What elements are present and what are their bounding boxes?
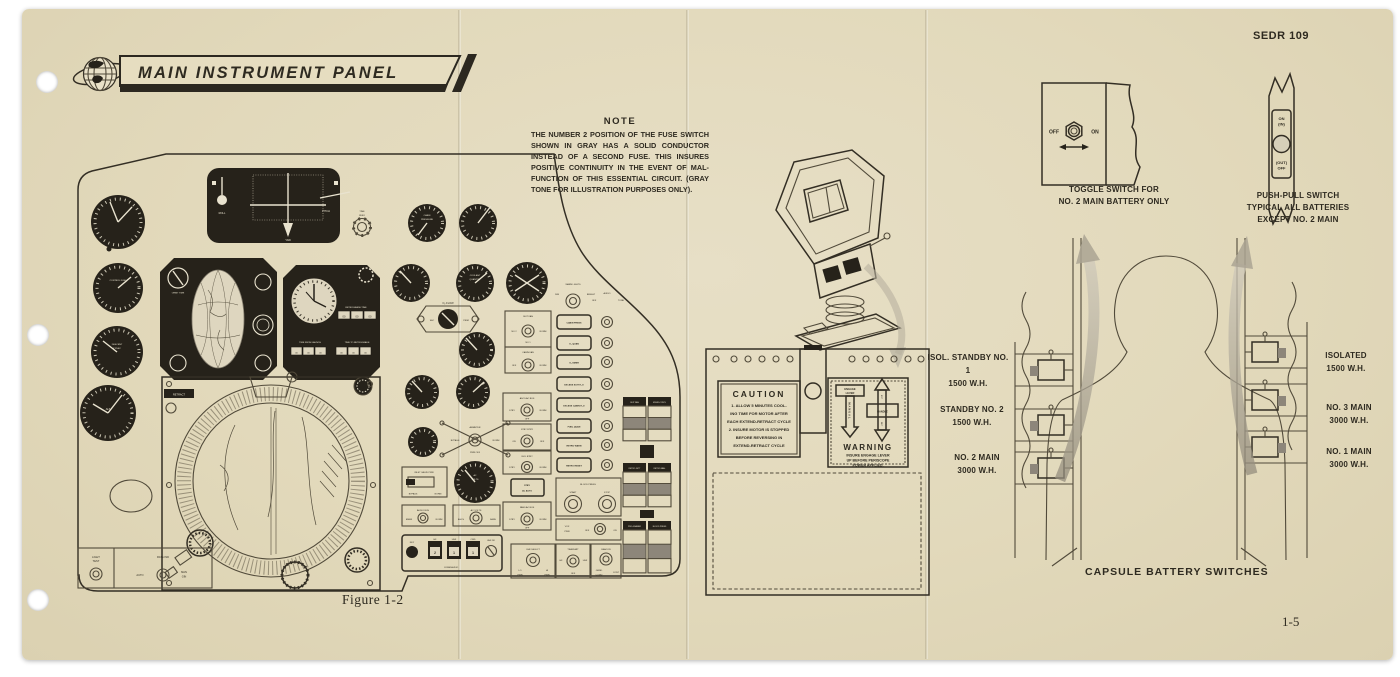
svg-text:ASCS AC BUS: ASCS AC BUS [520,397,535,400]
battery-label: ISOL. STANDBY NO. 1 1500 W.H. [926,352,1010,390]
svg-text:STBY: STBY [509,519,515,521]
svg-text:2: 2 [434,551,436,555]
screw-icons [713,356,924,362]
svg-text:FANS AC BUS: FANS AC BUS [520,506,535,509]
power-comm-cluster: AMMETER BYPASS NORM PWR OFF INLET VALVE … [402,421,510,571]
svg-text:HF: HF [560,560,564,562]
svg-text:PWR: PWR [544,575,550,577]
svg-text:BRIGHT: BRIGHT [587,294,596,296]
svg-text:OFF: OFF [592,300,597,302]
warning-light: EXCESS CABIN H₂O [563,405,585,408]
svg-text:BEFORE REVERSING IN: BEFORE REVERSING IN [736,435,783,440]
svg-text:GIN: GIN [182,575,187,579]
bus-switch-boxes: SUIT FAN NO 2 NORM NO 1 CABIN FAN OFF NO… [503,311,551,530]
svg-text:TONE: TONE [618,300,625,302]
svg-text:START: START [570,491,578,494]
warning-title: WARNING [843,443,892,452]
svg-text:1: 1 [472,551,474,555]
svg-text:CONT: CONT [613,572,620,574]
retract-label: RETRACT [173,393,186,397]
svg-text:TIME: TIME [359,211,365,213]
on-label: ON [1091,130,1099,136]
page-title: MAIN INSTRUMENT PANEL [138,64,398,82]
svg-text:ENGAGE: ENGAGE [844,387,856,391]
svg-text:RET: RET [880,422,882,427]
punch-hole [36,71,58,93]
svg-text:LEVER: LEVER [846,391,855,395]
warning-light: CABIN PRESS [567,322,582,325]
svg-text:OFF: OFF [525,528,530,530]
svg-text:UHF SELECT: UHF SELECT [526,549,540,551]
svg-text:BYPASS: BYPASS [409,493,418,496]
svg-text:NORM: NORM [540,331,547,333]
svg-text:SUIT FAN: SUIT FAN [523,315,533,318]
doc-reference: SEDR 109 [1253,30,1309,42]
off-label: OFF [1049,130,1059,136]
svg-text:NORM: NORM [540,467,547,469]
svg-text:OFF: OFF [585,530,590,532]
svg-text:ING TIME FOR MOTOR AFTER: ING TIME FOR MOTOR AFTER [730,411,788,416]
svg-text:BLOOD PRESS: BLOOD PRESS [580,484,596,486]
svg-text:AC: AC [473,474,476,477]
caution-placard: CAUTION 1. ALLOW 5 MINUTES COOL- ING TIM… [718,381,800,457]
page-number: 1-5 [1282,614,1299,630]
svg-text:WARN LIGHTS: WARN LIGHTS [565,283,581,286]
rate-of-descent-gauges: CONTROL FUEL DESCENT FT/SEC [91,195,145,378]
svg-text:OFF: OFF [1278,166,1287,171]
svg-text:COOLANT: COOLANT [470,274,481,277]
svg-text:AUDIO BUS: AUDIO BUS [417,509,430,512]
svg-text:EXTEND-RETRACT CYCLE: EXTEND-RETRACT CYCLE [733,443,785,448]
svg-text:1: 1 [453,551,455,555]
svg-text:LO: LO [519,570,522,572]
svg-text:ON: ON [512,441,516,443]
svg-text:SUIT FAN: SUIT FAN [630,401,639,404]
svg-text:NORM: NORM [540,365,547,367]
svg-text:PRESSURE: PRESSURE [421,219,434,221]
svg-text:ON: ON [613,530,617,532]
battery-label: ISOLATED 1500 W.H. [1310,350,1382,376]
svg-text:AMMETER: AMMETER [470,426,481,429]
battery-label: NO. 2 MAIN 3000 W.H. [944,452,1010,478]
svg-text:ENVIR-CONTL: ENVIR-CONTL [653,402,666,404]
punch-hole [27,324,49,346]
svg-text:INSURE ENGAGE LEVER: INSURE ENGAGE LEVER [846,454,890,458]
svg-text:SEC: SEC [430,320,435,322]
svg-text:VOX: VOX [565,526,570,528]
svg-text:AUTO: AUTO [136,573,143,577]
svg-text:BYPASS: BYPASS [451,439,460,442]
svg-text:STBY: STBY [509,467,515,469]
note-heading: NOTE [531,116,709,127]
warning-light: O₂ QUAN [569,343,579,346]
svg-text:TEST: TEST [93,559,100,563]
svg-text:GRND: GRND [596,570,603,572]
fuse-channel [800,349,826,433]
svg-text:KEY: KEY [410,542,415,544]
svg-text:COMD: COMD [596,575,603,577]
periscope-screen: RETRACT [162,377,380,590]
time-zero-knob: TIME ZERO [354,211,371,236]
punch-hole [27,589,49,611]
svg-text:HI: HI [546,570,549,572]
attitude-indicator: ROLL PITCH YAW [207,168,350,243]
svg-text:ISOL BTRY: ISOL BTRY [521,456,533,458]
warning-light: EXCESS SUIT H₂O [564,385,584,387]
svg-text:STBY BTRY: STBY BTRY [521,429,534,431]
svg-text:UHF: UHF [583,560,588,562]
instrument-panel-figure: CONTROL FUEL DESCENT FT/SEC ROLL PITCH Y… [70,145,685,610]
svg-text:RETRO MAN.: RETRO MAN. [654,467,666,470]
pitch-label: PITCH [322,209,330,213]
toggle-switch-caption: TOGGLE SWITCH FOR NO. 2 MAIN BATTERY ONL… [1024,184,1204,208]
orbit-time-label: ORBIT TIME [172,293,185,295]
capsule-battery-figure [990,222,1380,567]
svg-text:RATE IND: RATE IND [157,555,169,559]
altimeter-gauge: ALT [80,385,136,441]
svg-text:EXT: EXT [880,395,882,400]
environment-gauges: CABIN PRESSURE COOLANT QUANTITY O₂ FLOW … [392,204,548,409]
svg-text:AC AUTO: AC AUTO [522,490,532,493]
battery-label: NO. 1 MAIN 3000 W.H. [1310,446,1388,472]
periscope-drawing [748,146,923,361]
svg-text:CMD: CMD [471,539,476,541]
svg-text:BEACON: BEACON [601,548,611,551]
svg-text:OFF: OFF [540,441,545,443]
svg-text:STOP: STOP [604,492,610,494]
svg-text:PRO-GRAMER: PRO-GRAMER [628,525,642,528]
svg-text:UHF: UHF [452,539,457,541]
svg-text:EMER: EMER [406,519,413,521]
svg-text:PWR OFF: PWR OFF [470,452,481,454]
svg-text:2. INSURE MOTOR IS STOPPED: 2. INSURE MOTOR IS STOPPED [729,427,790,432]
svg-text:NORM: NORM [493,440,500,442]
warning-lights-section: WARN LIGHTS DIM BRIGHT AUDIO OFF TONE CA… [555,283,625,472]
svg-text:LIGHT: LIGHT [92,555,100,559]
svg-text:(OUT): (OUT) [1276,160,1288,165]
manual-page: MAIN INSTRUMENT PANEL NOTE THE NUMBER 2 … [0,0,1400,677]
capsule-battery-caption: CAPSULE BATTERY SWITCHES [1085,566,1269,578]
svg-text:COMM AUDIO: COMM AUDIO [444,566,459,569]
torn-edge [1106,83,1140,185]
svg-text:EACH EXTEND-RETRACT CYCLE: EACH EXTEND-RETRACT CYCLE [727,419,791,424]
o2-flow-label: O₂ FLOW [442,301,454,305]
svg-text:FANS: FANS [490,518,496,521]
svg-text:HF: HF [434,539,438,541]
fuse-switch-panel: CAUTION 1. ALLOW 5 MINUTES COOL- ING TIM… [700,345,935,600]
title-banner: MAIN INSTRUMENT PANEL [58,48,488,100]
blank-window [110,480,152,512]
svg-text:CABIN: CABIN [424,214,431,217]
svg-text:MANUAL: MANUAL [848,402,852,419]
svg-text:UHF DF: UHF DF [487,540,496,542]
push-pull-knob-icon [1273,136,1290,153]
caution-title: CAUTION [733,389,786,399]
svg-text:RETRO JETT: RETRO JETT [629,468,642,470]
battery-rail-left [1015,238,1081,566]
svg-text:POWER APPLIED.: POWER APPLIED. [852,463,883,467]
svg-text:NORM: NORM [540,410,547,412]
svg-text:STBY: STBY [524,485,530,487]
svg-text:OFF: OFF [571,573,576,575]
retrograde-time-label: RETROGRADE TIME [345,306,367,309]
yaw-label: YAW [285,238,291,242]
svg-text:NO 1: NO 1 [525,342,531,344]
svg-text:ON: ON [1279,116,1285,121]
svg-text:PRIM: PRIM [463,320,469,322]
svg-text:PWR: PWR [517,575,523,577]
roll-label: ROLL [219,211,226,215]
svg-text:NORM: NORM [436,519,443,521]
time-to-retrograde-label: TIME TO RETROGRADE [345,341,370,344]
svg-text:MAN: MAN [181,570,187,574]
svg-text:(IN): (IN) [1278,122,1285,127]
svg-text:CABIN FAN: CABIN FAN [522,351,534,354]
battery-label: NO. 3 MAIN 3000 W.H. [1310,402,1388,428]
svg-text:OFF: OFF [525,419,530,421]
svg-text:TRANSMIT: TRANSMIT [567,548,579,551]
svg-text:NORM: NORM [435,494,442,496]
warning-light: FUEL QUAN [568,426,581,429]
svg-text:ZERO: ZERO [359,215,365,217]
svg-text:DIM: DIM [555,294,559,296]
comm-audio-panel: KEY HF UHF CMD 2 1 1 COMM AUDIO UHF DF [402,535,502,571]
svg-text:1. ALLOW 5 MINUTES COOL-: 1. ALLOW 5 MINUTES COOL- [731,403,787,408]
svg-text:PWR: PWR [564,531,570,533]
gauge-label: DESCENT [112,344,123,346]
warning-light: O₂ EMER [569,363,579,365]
figure-caption: Figure 1-2 [342,592,404,608]
earth-path-indicator: ORBIT TIME [160,258,277,380]
svg-text:OFF: OFF [512,365,517,367]
svg-text:NORM: NORM [540,519,547,521]
svg-text:UP BEFORE PERISCOPE: UP BEFORE PERISCOPE [847,459,890,463]
warning-placard: ENGAGE LEVER MANUAL HANDLE EXT RET WARNI… [828,378,908,467]
svg-text:AUDIO: AUDIO [604,292,611,295]
time-from-launch-label: TIME FROM LAUNCH [299,341,321,344]
blank-panel-area [713,473,921,589]
fuse-blocks: SUIT FAN ENVIR-CONTL RETRO JETT RETRO MA… [623,397,671,573]
push-pull-caption: PUSH-PULL SWITCH TYPICAL ALL BATTERIES E… [1218,190,1378,226]
svg-text:INLET VALVE PWR: INLET VALVE PWR [414,471,434,474]
svg-text:STBY: STBY [509,410,515,412]
svg-text:BLOOD PRESS: BLOOD PRESS [653,526,667,528]
warning-light: RETRO RESET [566,466,582,468]
retrograde-clock: RETROGRADE TIME 00 00 00 TIME FROM LAUNC… [283,265,380,395]
battery-label: STANDBY NO. 2 1500 W.H. [934,404,1010,430]
warning-light: RETRO WARN [567,445,582,448]
svg-text:NO 2: NO 2 [511,331,517,333]
fold-line [686,10,689,659]
svg-text:ASCS: ASCS [458,518,464,521]
svg-text:HANDLE: HANDLE [877,410,888,414]
